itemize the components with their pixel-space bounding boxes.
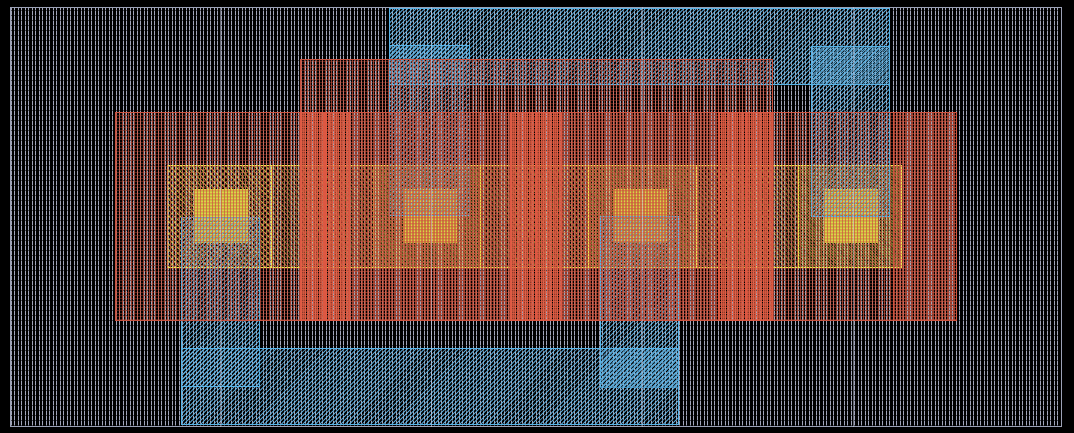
layout-canvas[interactable] bbox=[0, 0, 1074, 433]
poly-contact-col-2a bbox=[510, 112, 536, 321]
grid-line-1 bbox=[220, 7, 221, 427]
poly-contact-col-2b bbox=[536, 112, 562, 321]
poly-contact-col-3a bbox=[718, 112, 746, 321]
metal-rail-bottom bbox=[181, 348, 679, 425]
grid-line-4 bbox=[853, 7, 854, 427]
poly-contact-col-1b bbox=[325, 112, 350, 321]
poly-region-right bbox=[893, 112, 957, 321]
poly-contact-col-1a bbox=[300, 112, 325, 321]
grid-line-3 bbox=[642, 7, 643, 427]
grid-line-2 bbox=[431, 7, 432, 427]
poly-contact-col-3b bbox=[746, 112, 773, 321]
